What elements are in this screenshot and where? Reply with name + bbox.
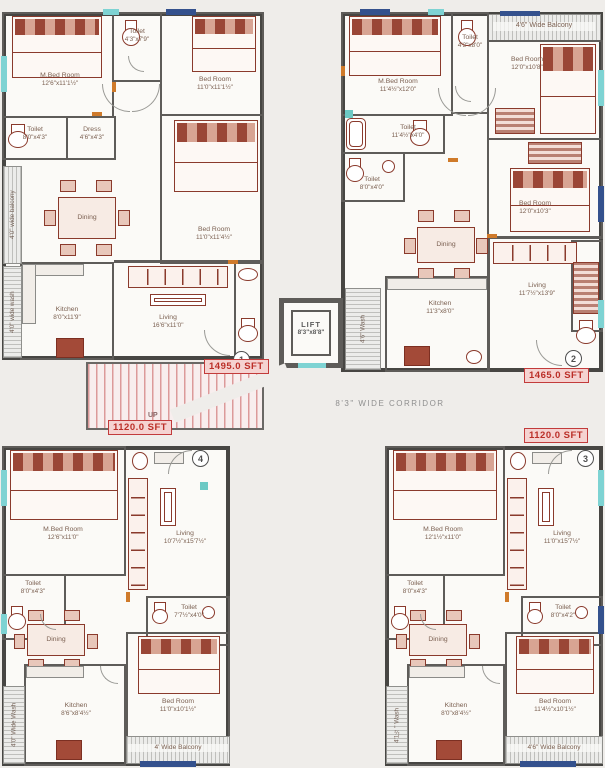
flat4-number-badge: 4	[192, 450, 209, 467]
flat1-living-label: Living 16'6"x11'0"	[126, 314, 210, 330]
flat3-dining-label: Dining	[428, 636, 447, 644]
flat3-wash-label: 4'1½" Wash	[386, 686, 408, 764]
dining-table-icon: Dining	[396, 610, 480, 670]
flat2-toilet-top-label: Toilet 4'3"x8'0"	[451, 34, 489, 50]
dining-table-icon: Dining	[14, 610, 98, 670]
flat4-balcony-label: 4' Wide Balcony	[128, 744, 228, 752]
wash-basin-icon	[382, 160, 395, 173]
sofa-icon	[128, 266, 228, 288]
flat1-bed1-label: Bed Room 11'0"x11'1½"	[170, 76, 260, 92]
window-icon	[1, 470, 7, 506]
toilet-wc-icon	[576, 320, 596, 344]
wardrobe-icon	[573, 262, 599, 314]
window-icon	[520, 761, 576, 767]
kitchen-counter-icon	[26, 666, 84, 678]
window-icon	[166, 9, 196, 15]
stove-icon	[436, 740, 462, 760]
dining-table-icon: Dining	[44, 178, 130, 258]
floor-plan: Dining M.Bed Room 12'6"x11'1½" Toilet 4'…	[0, 0, 605, 768]
door-jamb	[487, 234, 497, 238]
window-icon	[598, 70, 604, 106]
flat2-toilet-mid1-label: Toilet 11'4½"x4'0"	[372, 124, 444, 140]
flat1-balcony-label: 4'0" wide balcony	[3, 166, 22, 264]
flat1-kitchen-label: Kitchen 8'0"x11'9"	[26, 306, 108, 322]
kitchen-sink-icon	[466, 350, 482, 364]
stairs-up-label: UP	[148, 412, 158, 419]
door-jamb	[92, 112, 102, 116]
flat1-mbed-label: M.Bed Room 12'6"x11'1½"	[14, 72, 106, 88]
bed-icon	[192, 16, 256, 72]
stove-icon	[56, 338, 84, 358]
kitchen-counter-icon	[409, 666, 465, 678]
flat4-living-label: Living 10'7½"x15'7½"	[146, 530, 224, 546]
wash-basin-icon	[132, 452, 148, 470]
flat1-dining-label: Dining	[77, 214, 96, 222]
dining-table-icon: Dining	[404, 210, 488, 280]
flat2-area-label: 1465.0 SFT	[524, 368, 589, 383]
flat3-kitchen-label: Kitchen 8'0"x8'4½"	[415, 702, 497, 718]
tv-unit-icon	[160, 488, 176, 526]
door-jamb	[341, 66, 345, 76]
flat2-living-label: Living 11'7½"x13'9"	[500, 282, 574, 298]
bed-icon	[393, 450, 497, 520]
bed-icon	[138, 636, 220, 694]
flat2-number-badge: 2	[565, 350, 582, 367]
flat4-bed-label: Bed Room 11'0"x10'1½"	[134, 698, 222, 714]
flat4-mbed-label: M.Bed Room 12'6"x11'0"	[14, 526, 112, 542]
window-teal-mark	[345, 110, 353, 118]
window-icon	[103, 9, 119, 15]
flat3-balcony-label: 4'6" Wide Balcony	[507, 744, 601, 752]
stove-icon	[56, 740, 82, 760]
flat1-bed2-label: Bed Room 11'0"x11'4½"	[168, 226, 260, 242]
window-icon	[598, 186, 604, 222]
wash-basin-icon	[510, 452, 526, 470]
toilet-wc-icon	[238, 318, 258, 342]
flat4-wash-label: 4'0" Wide Wash	[3, 686, 25, 764]
bed-icon	[516, 636, 594, 694]
door-jamb	[505, 592, 509, 602]
kitchen-counter-icon	[387, 278, 487, 290]
flat2-dining-label: Dining	[436, 241, 455, 249]
flat4-area-label: 1120.0 SFT	[108, 420, 172, 435]
flat1-wash-label: 4'0" wide wash	[3, 266, 22, 358]
window-icon	[500, 11, 540, 16]
sofa-icon	[493, 242, 577, 264]
flat1-area-label: 1495.0 SFT	[204, 359, 269, 374]
door-jamb	[126, 592, 130, 602]
flat2-bed1-label: Bed Room 12'0"x10'8"	[496, 56, 558, 72]
door-jamb	[228, 260, 238, 264]
flat2-bed2-label: Bed Room 12'0"x10'3"	[492, 200, 578, 216]
window-teal-mark	[200, 482, 208, 490]
corridor-label: 8'3" WIDE CORRIDOR	[300, 399, 480, 408]
wash-basin-icon	[238, 268, 258, 281]
sofa-icon	[128, 478, 148, 590]
door-jamb	[448, 158, 458, 162]
window-icon	[428, 9, 444, 15]
wardrobe-icon	[495, 108, 535, 134]
flat3-toilet-mid-label: Toilet 8'0"x4'2"	[527, 604, 599, 620]
window-icon	[598, 470, 604, 506]
flat3-mbed-label: M.Bed Room 12'1½"x11'0"	[395, 526, 491, 542]
window-icon	[1, 56, 7, 92]
tv-unit-icon	[538, 488, 554, 526]
flat4-toilet-mid-label: Toilet 7'7½"x4'0"	[150, 604, 228, 620]
wardrobe-icon	[528, 142, 582, 164]
flat2-kitchen-label: Kitchen 11'3"x8'0"	[398, 300, 482, 316]
flat3-number-badge: 3	[577, 450, 594, 467]
flat3-toilet-left-label: Toilet 8'0"x4'3"	[387, 580, 443, 596]
bed-icon	[10, 450, 118, 520]
lift-door-mark	[298, 363, 326, 368]
flat1-toilet-left-label: Toilet 8'0"x4'3"	[4, 126, 66, 142]
flat1-toilet-top-label: Toilet 4'3"x7'9"	[112, 28, 162, 44]
flat2-balcony-label: 4'6" Wide Balcony	[493, 22, 595, 31]
bathtub-icon	[346, 118, 366, 150]
tv-unit-icon	[150, 294, 206, 306]
window-icon	[360, 9, 390, 15]
flat3-area-label: 1120.0 SFT	[524, 428, 588, 443]
lift-label: LIFT 8'3"x8'8"	[283, 320, 339, 337]
flat3-living-label: Living 11'0"x15'7½"	[524, 530, 600, 546]
flat2-toilet-mid2-label: Toilet 8'0"x4'0"	[342, 176, 402, 192]
flat2-living-wall-top	[487, 236, 603, 239]
door-jamb	[112, 82, 116, 92]
stove-icon	[404, 346, 430, 366]
window-icon	[598, 300, 604, 328]
flat3-bed-label: Bed Room 11'4½"x10'1½"	[512, 698, 598, 714]
bed-icon	[349, 16, 441, 76]
bed-icon	[174, 120, 258, 192]
flat4-dining-label: Dining	[46, 636, 65, 644]
window-icon	[140, 761, 196, 767]
flat4-toilet-left-label: Toilet 8'0"x4'3"	[4, 580, 62, 596]
window-icon	[1, 614, 7, 634]
flat4-kitchen-label: Kitchen 8'6"x8'4½"	[34, 702, 118, 718]
flat2-mbed-label: M.Bed Room 11'4½"x12'0"	[354, 78, 442, 94]
flat1-dress-label: Dress 4'6"x4'3"	[66, 126, 118, 142]
flat2-wash-label: 4'6" Wash	[345, 288, 381, 370]
bed-icon	[12, 16, 102, 78]
